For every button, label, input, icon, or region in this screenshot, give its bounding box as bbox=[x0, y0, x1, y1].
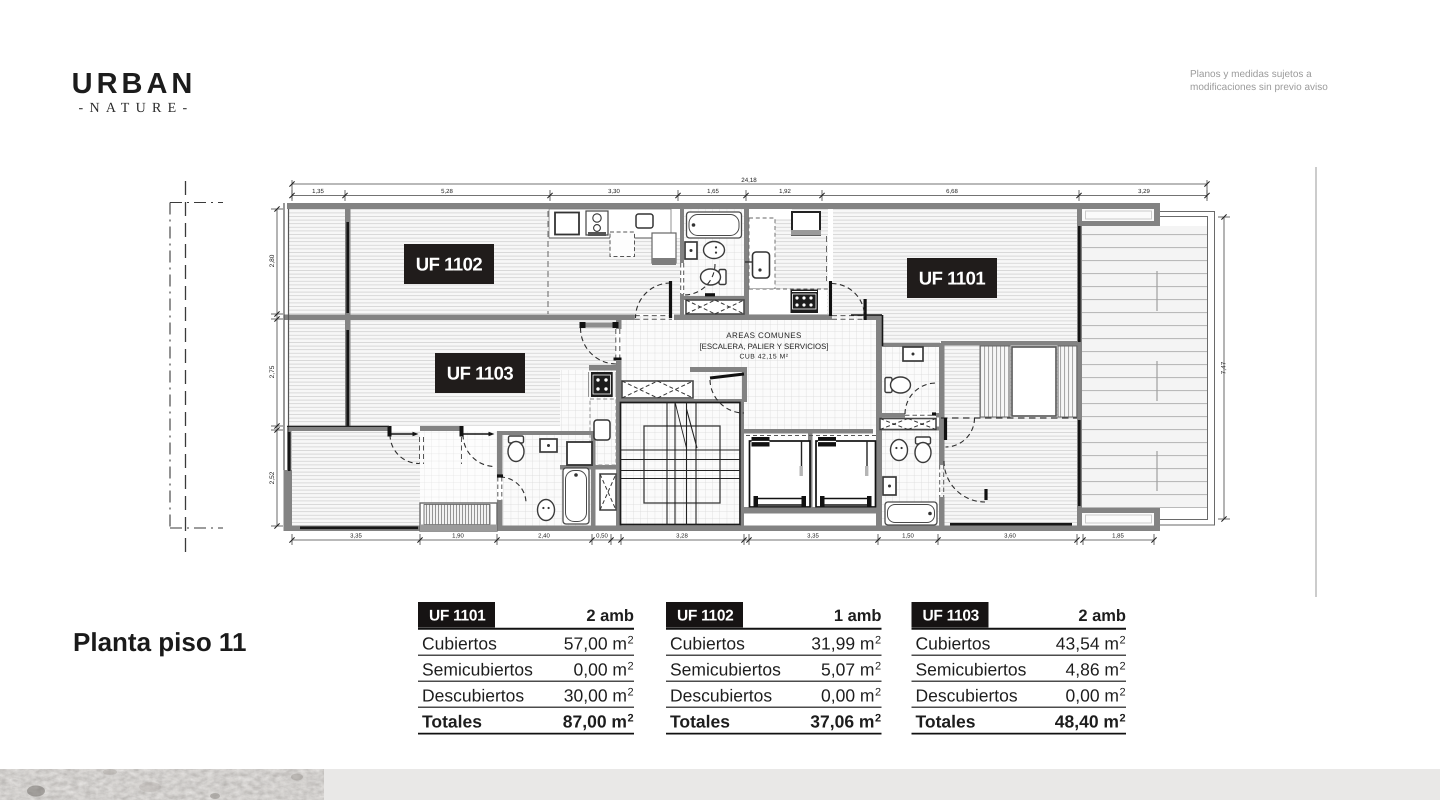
svg-text:4,86 m: 4,86 m bbox=[1066, 660, 1120, 680]
svg-text:31,99 m: 31,99 m bbox=[811, 634, 874, 654]
svg-text:[ESCALERA, PALIER Y SERVICIOS]: [ESCALERA, PALIER Y SERVICIOS] bbox=[700, 342, 829, 351]
svg-text:1,35: 1,35 bbox=[312, 188, 324, 195]
svg-text:1 amb: 1 amb bbox=[834, 607, 882, 625]
svg-text:3,35: 3,35 bbox=[350, 533, 362, 540]
svg-text:2: 2 bbox=[628, 635, 634, 647]
svg-text:0,50: 0,50 bbox=[596, 533, 608, 540]
svg-text:-NATURE-: -NATURE- bbox=[79, 101, 194, 116]
svg-text:1,50: 1,50 bbox=[902, 533, 914, 540]
svg-text:48,40 m: 48,40 m bbox=[1055, 712, 1119, 732]
svg-text:Planta piso 11: Planta piso 11 bbox=[73, 627, 246, 657]
svg-text:2: 2 bbox=[1120, 635, 1126, 647]
svg-text:2 amb: 2 amb bbox=[1078, 607, 1126, 625]
svg-text:AREAS COMUNES: AREAS COMUNES bbox=[726, 331, 801, 340]
svg-text:Descubiertos: Descubiertos bbox=[916, 686, 1018, 706]
svg-text:Descubiertos: Descubiertos bbox=[422, 686, 524, 706]
svg-text:3,29: 3,29 bbox=[1138, 188, 1150, 195]
svg-text:2,80: 2,80 bbox=[269, 254, 276, 267]
svg-text:87,00 m: 87,00 m bbox=[563, 712, 627, 732]
svg-text:2,40: 2,40 bbox=[538, 533, 550, 540]
svg-text:3,60: 3,60 bbox=[1004, 533, 1016, 540]
svg-text:Cubiertos: Cubiertos bbox=[422, 634, 497, 654]
svg-text:UF 1101: UF 1101 bbox=[429, 608, 486, 625]
svg-text:30,00 m: 30,00 m bbox=[564, 686, 627, 706]
svg-text:0,00 m: 0,00 m bbox=[574, 660, 628, 680]
svg-text:UF 1102: UF 1102 bbox=[416, 254, 483, 275]
svg-text:Cubiertos: Cubiertos bbox=[670, 634, 745, 654]
svg-text:Semicubiertos: Semicubiertos bbox=[670, 660, 781, 680]
svg-text:2: 2 bbox=[628, 713, 634, 725]
svg-text:Cubiertos: Cubiertos bbox=[916, 634, 991, 654]
svg-text:2: 2 bbox=[875, 687, 881, 699]
svg-text:1,92: 1,92 bbox=[779, 188, 791, 195]
svg-text:UF 1103: UF 1103 bbox=[923, 608, 980, 625]
svg-text:2: 2 bbox=[628, 661, 634, 673]
svg-text:2: 2 bbox=[1120, 713, 1126, 725]
svg-text:2: 2 bbox=[628, 687, 634, 699]
svg-text:CUB 42,15 M²: CUB 42,15 M² bbox=[739, 354, 788, 361]
svg-text:2 amb: 2 amb bbox=[586, 607, 634, 625]
svg-text:1,90: 1,90 bbox=[452, 533, 464, 540]
svg-text:37,06 m: 37,06 m bbox=[810, 712, 874, 732]
svg-text:7,47: 7,47 bbox=[1221, 361, 1228, 374]
svg-text:Semicubiertos: Semicubiertos bbox=[916, 660, 1027, 680]
svg-text:2,52: 2,52 bbox=[269, 471, 276, 484]
svg-text:6,68: 6,68 bbox=[946, 188, 958, 195]
svg-text:1,85: 1,85 bbox=[1112, 533, 1124, 540]
svg-text:UF 1102: UF 1102 bbox=[677, 608, 734, 625]
svg-text:2: 2 bbox=[875, 661, 881, 673]
svg-text:2,75: 2,75 bbox=[269, 365, 276, 378]
svg-text:UF 1103: UF 1103 bbox=[447, 363, 514, 384]
svg-text:43,54 m: 43,54 m bbox=[1056, 634, 1119, 654]
svg-text:modificaciones sin previo avis: modificaciones sin previo aviso bbox=[1190, 82, 1328, 93]
svg-text:2: 2 bbox=[1120, 661, 1126, 673]
svg-text:URBAN: URBAN bbox=[72, 68, 197, 100]
svg-text:Planos y medidas sujetos a: Planos y medidas sujetos a bbox=[1190, 69, 1312, 80]
svg-text:2: 2 bbox=[875, 635, 881, 647]
svg-text:Totales: Totales bbox=[670, 712, 730, 732]
svg-text:Totales: Totales bbox=[422, 712, 482, 732]
svg-text:3,35: 3,35 bbox=[807, 533, 819, 540]
svg-text:0,00 m: 0,00 m bbox=[821, 686, 875, 706]
svg-text:0,00 m: 0,00 m bbox=[1066, 686, 1120, 706]
svg-text:Semicubiertos: Semicubiertos bbox=[422, 660, 533, 680]
svg-text:UF 1101: UF 1101 bbox=[919, 268, 986, 289]
svg-text:Descubiertos: Descubiertos bbox=[670, 686, 772, 706]
svg-text:5,07 m: 5,07 m bbox=[821, 660, 875, 680]
svg-text:2: 2 bbox=[875, 713, 881, 725]
svg-text:1,65: 1,65 bbox=[707, 188, 719, 195]
svg-text:57,00 m: 57,00 m bbox=[564, 634, 627, 654]
svg-text:2: 2 bbox=[1120, 687, 1126, 699]
svg-text:5,28: 5,28 bbox=[441, 188, 453, 195]
svg-text:Totales: Totales bbox=[916, 712, 976, 732]
svg-text:3,30: 3,30 bbox=[608, 188, 620, 195]
svg-text:3,28: 3,28 bbox=[676, 533, 688, 540]
svg-text:24,18: 24,18 bbox=[741, 177, 757, 184]
